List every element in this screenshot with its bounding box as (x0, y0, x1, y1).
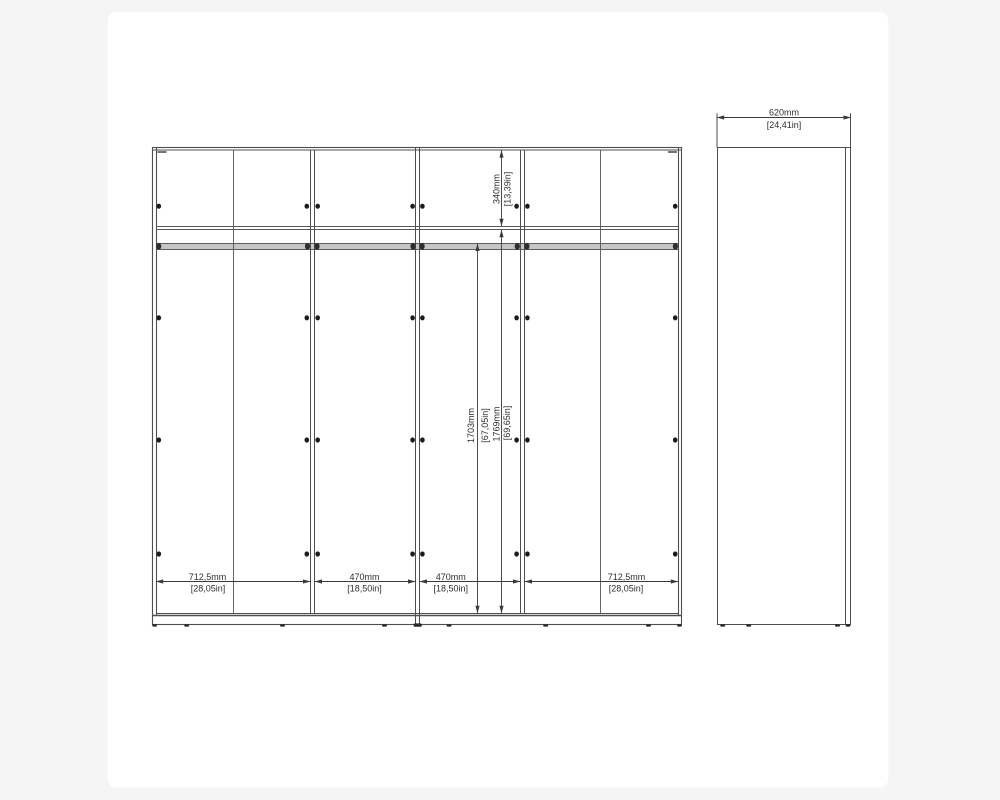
svg-text:712,5mm: 712,5mm (608, 572, 646, 582)
svg-text:[69,65in]: [69,65in] (502, 406, 512, 441)
svg-text:1703mm: 1703mm (466, 408, 476, 443)
svg-text:1769mm: 1769mm (491, 406, 501, 441)
svg-text:[18,50in]: [18,50in] (347, 584, 382, 594)
svg-text:[28,05in]: [28,05in] (191, 584, 226, 594)
svg-text:470mm: 470mm (436, 572, 466, 582)
svg-text:[13,39in]: [13,39in] (503, 172, 513, 207)
svg-text:[67,05in]: [67,05in] (480, 408, 490, 443)
svg-text:620mm: 620mm (769, 107, 799, 117)
svg-text:[18,50in]: [18,50in] (434, 584, 469, 594)
svg-text:470mm: 470mm (349, 572, 379, 582)
svg-text:[28,05in]: [28,05in] (609, 584, 644, 594)
svg-text:[24,41in]: [24,41in] (767, 120, 802, 130)
svg-text:712,5mm: 712,5mm (189, 572, 227, 582)
svg-text:340mm: 340mm (492, 174, 502, 204)
